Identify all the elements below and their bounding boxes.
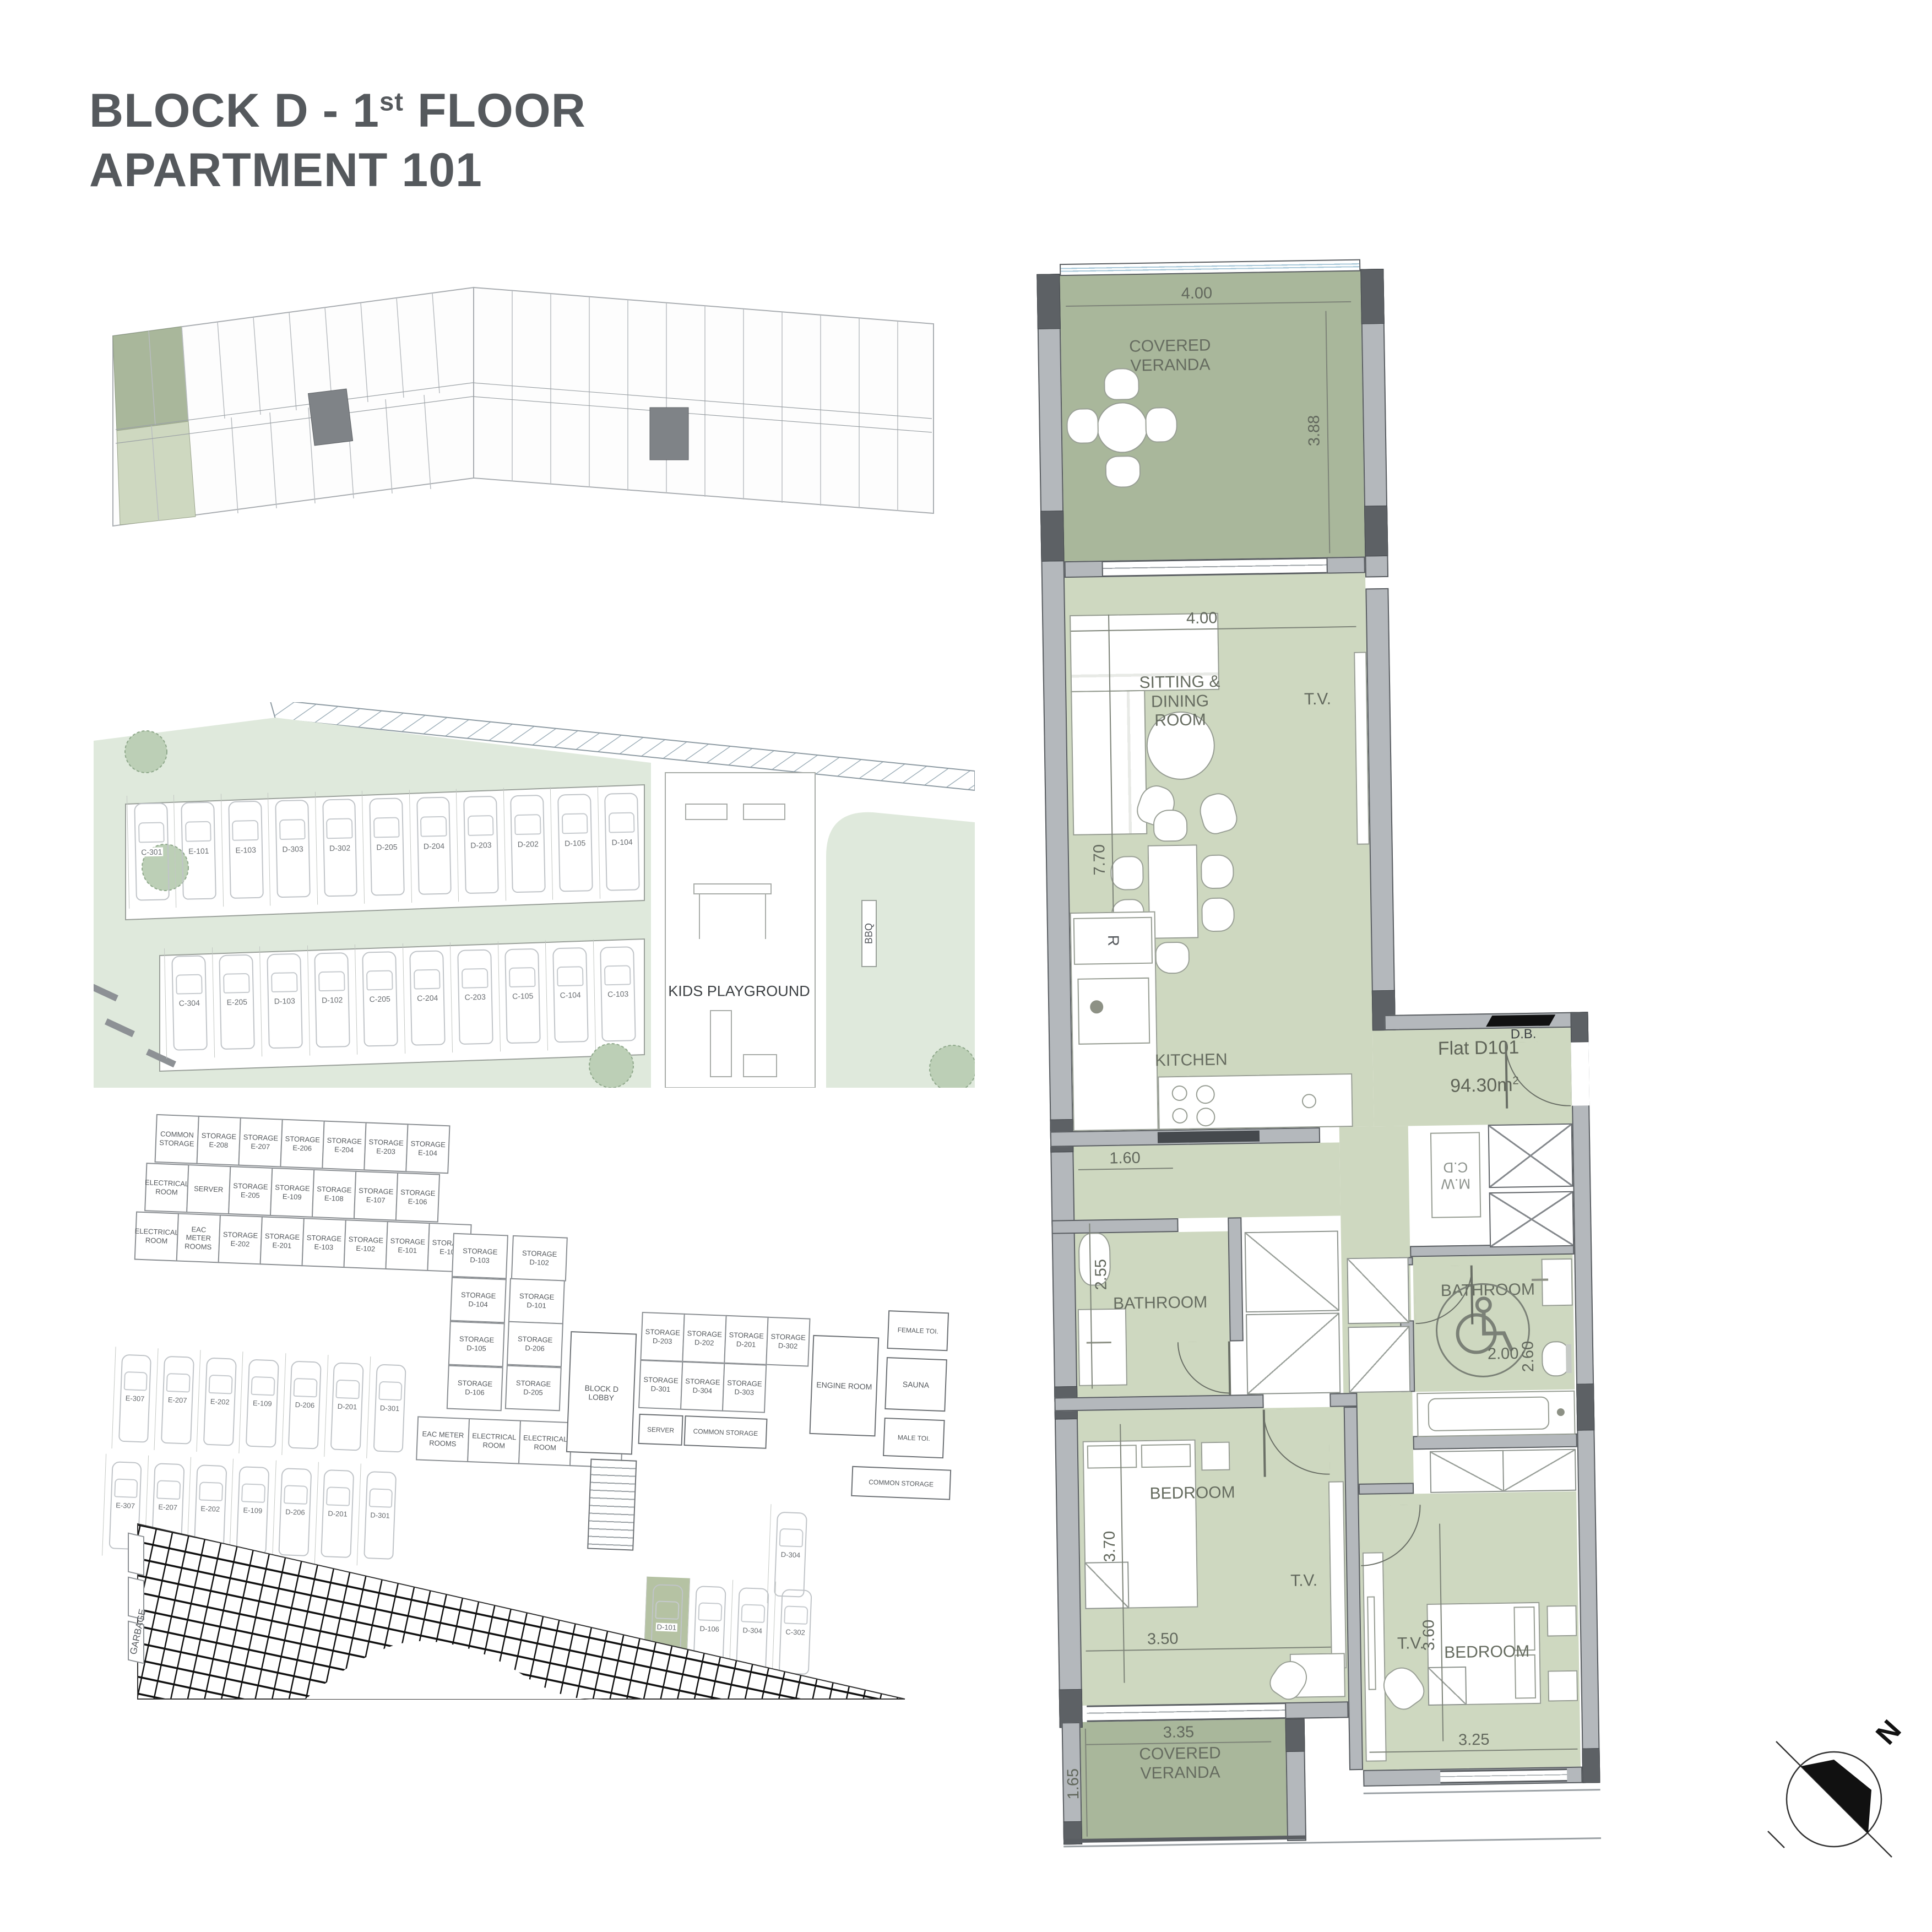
wall [1065, 561, 1103, 578]
chair [1153, 810, 1188, 842]
dimension: 2.60 [1519, 1341, 1538, 1372]
storage-cell: COMMON STORAGE [155, 1114, 199, 1164]
storage-cell: ELECTRICAL ROOM [134, 1212, 179, 1262]
closet [1347, 1257, 1409, 1324]
parking-row-top: C-301E-101E-103D-303D-302D-205D-204D-203… [127, 785, 647, 909]
stall-label: C-205 [368, 994, 392, 1003]
basement-parking-stall: E-307 [112, 1347, 158, 1450]
storage-cell: STORAGE D-303 [722, 1363, 767, 1413]
basement-plan: COMMON STORAGESTORAGE E-208STORAGE E-207… [94, 1093, 1030, 1504]
storage-cell: STORAGE E-101 [385, 1221, 430, 1271]
sauna-room: SAUNA [884, 1357, 947, 1412]
common-storage-room-2: COMMON STORAGE [683, 1415, 767, 1449]
storage-cell: STORAGE E-106 [395, 1173, 440, 1223]
parking-row-bottom: C-304E-205D-103D-102C-205C-204C-203C-105… [164, 938, 643, 1059]
wardrobe [1430, 1450, 1504, 1493]
key-plan [94, 259, 964, 650]
stall-label: E-307 [115, 1501, 136, 1510]
storage-cell: STORAGE E-201 [260, 1216, 305, 1266]
stall-label: E-109 [252, 1399, 273, 1408]
parking-stall: D-302 [315, 791, 365, 905]
parking-stall: E-101 [173, 794, 223, 908]
wall [1051, 1218, 1178, 1234]
parking-stall: D-205 [362, 790, 411, 904]
bathroom1-door-leaf [1228, 1342, 1231, 1395]
window-band [1087, 1702, 1285, 1722]
tv-label: T.V. [1304, 690, 1331, 709]
kitchen-label: KITCHEN [1155, 1050, 1228, 1071]
bathtub-inner [1428, 1396, 1549, 1431]
storage-right-1: STORAGE D-203STORAGE D-202STORAGE D-201S… [641, 1312, 810, 1367]
compass-needle [1801, 1760, 1871, 1833]
female-toilet-room: FEMALE TOI. [887, 1310, 949, 1351]
dimension: 7.70 [1090, 844, 1109, 876]
stall-label: D-105 [563, 838, 587, 848]
bed-fold [1428, 1667, 1467, 1706]
storage-cell: STORAGE D-105 [448, 1321, 505, 1367]
tv-cabinet [1328, 1481, 1347, 1668]
chair [1066, 408, 1099, 444]
chair [1110, 856, 1144, 891]
basement-parking-stall: D-206 [281, 1353, 328, 1457]
storage-cell: STORAGE E-108 [312, 1169, 356, 1219]
storage-cell: STORAGE D-103 [452, 1233, 508, 1279]
fridge-label: R [1104, 935, 1122, 946]
wall [1359, 1483, 1414, 1495]
server-room: SERVER [638, 1414, 683, 1446]
storage-cell: STORAGE D-102 [511, 1235, 568, 1282]
dimension: 3.35 [1163, 1723, 1194, 1742]
dimension: 4.00 [1186, 609, 1218, 628]
key-plan-stair-core-2 [650, 408, 688, 460]
wall-column [1570, 1012, 1588, 1042]
key-plan-highlight-veranda [113, 327, 188, 431]
stall-label: C-301 [140, 847, 163, 856]
stall-label: D-205 [375, 842, 398, 851]
storage-cell: STORAGE D-304 [680, 1361, 725, 1412]
stall-label: C-304 [178, 998, 201, 1008]
stall-label: E-101 [187, 846, 210, 855]
tv-label: T.V. [1290, 1571, 1317, 1591]
wall-column [1360, 269, 1385, 324]
basement-parking-stall: E-207 [154, 1348, 200, 1452]
veranda-top-label: COVERED VERANDA [1129, 336, 1211, 375]
ground-line [1364, 1789, 1600, 1794]
parking-stall: C-105 [497, 941, 547, 1052]
stall-label: D-303 [281, 844, 304, 854]
stall-label: D-206 [284, 1507, 306, 1517]
pillow [1087, 1445, 1137, 1468]
storage-cell: STORAGE E-207 [238, 1117, 283, 1168]
basement-parking-row-1: E-307E-207E-202E-109D-206D-201D-301 [112, 1347, 413, 1460]
stall-label: C-104 [558, 990, 582, 1000]
key-plan-right-wing [474, 287, 934, 513]
dimension: 3.60 [1420, 1619, 1439, 1651]
stall-label: E-109 [242, 1506, 263, 1515]
basement-group: COMMON STORAGESTORAGE E-208STORAGE E-207… [79, 1093, 1030, 1539]
wall [1285, 1701, 1348, 1719]
storage-mid-left: STORAGE D-103STORAGE D-104STORAGE D-105S… [448, 1233, 508, 1412]
parking-stall: D-103 [259, 946, 310, 1057]
storage-cell: STORAGE E-205 [228, 1166, 273, 1216]
storage-cell: STORAGE E-204 [322, 1120, 366, 1170]
apartment-plan: COVERED VERANDA 4.00 3.88 T.V. SITTING &… [1031, 254, 1618, 1860]
db-label: D.B. [1511, 1027, 1537, 1043]
parking-stall: D-204 [409, 789, 459, 903]
parking-stall: C-204 [402, 942, 452, 1054]
dimension: 3.88 [1305, 415, 1324, 446]
stall-label: E-207 [167, 1396, 188, 1404]
bbq-label: BBQ [864, 923, 875, 944]
chair [1145, 407, 1177, 443]
title-line1: BLOCK D - 1st FLOOR [89, 82, 586, 141]
dimension: 2.00 [1488, 1345, 1519, 1364]
chair [1201, 854, 1234, 889]
key-plan-stair-core [308, 389, 353, 446]
interior-window [1158, 1131, 1260, 1143]
basement-parking-stall: D-301 [366, 1356, 413, 1460]
closet [1348, 1326, 1410, 1393]
kitchen-sink-unit [1077, 978, 1150, 1045]
parking-stall: D-104 [597, 785, 647, 899]
storage-cell: ELECTRICAL ROOM [144, 1163, 189, 1213]
sofa [1071, 690, 1147, 835]
wall-column [1582, 1748, 1600, 1783]
storage-cell: STORAGE E-107 [354, 1171, 398, 1221]
stall-label: C-105 [511, 991, 534, 1001]
service-shaft [1489, 1191, 1575, 1247]
parking-stall: D-102 [307, 945, 357, 1056]
title-ordinal: st [379, 87, 404, 116]
chair [1201, 897, 1235, 932]
ramp-hatch [138, 1524, 905, 1699]
wall-column [1576, 1383, 1594, 1430]
storage-right-2: STORAGE D-301STORAGE D-304STORAGE D-303 [639, 1360, 767, 1413]
storage-cell: STORAGE E-109 [270, 1168, 314, 1218]
parking-stall: D-303 [268, 792, 317, 906]
stall-label: D-302 [328, 843, 351, 853]
chair [1104, 368, 1139, 400]
storage-cell: ELECTRICAL ROOM [518, 1420, 572, 1467]
page-title: BLOCK D - 1st FLOOR APARTMENT 101 [89, 82, 586, 200]
nightstand [1546, 1605, 1577, 1637]
parking-stall: C-301 [127, 795, 176, 909]
basement-parking-stall: E-202 [197, 1350, 243, 1453]
stall-label: D-301 [379, 1404, 401, 1413]
parking-stall: E-103 [221, 793, 270, 907]
storage-mid-right: STORAGE D-102 STORAGE D-101 STORAGE D-20… [506, 1235, 568, 1412]
wall-column [1040, 511, 1064, 562]
dimension: 4.00 [1181, 284, 1212, 303]
storage-cell: STORAGE D-205 [505, 1365, 562, 1412]
storage-mid-right-rest: STORAGE D-206STORAGE D-205 [506, 1321, 565, 1412]
chair [1105, 455, 1141, 488]
parking-stall: C-203 [450, 941, 500, 1052]
wall [1329, 1393, 1357, 1407]
stall-label: D-102 [321, 995, 344, 1005]
title-line2: APARTMENT 101 [89, 141, 586, 200]
site-plan: C-301E-101E-103D-303D-302D-205D-204D-203… [94, 702, 975, 1088]
kitchen-counter [1158, 1073, 1353, 1130]
common-storage-room: COMMON STORAGE [851, 1466, 951, 1500]
veranda-bottom-label: COVERED VERANDA [1139, 1744, 1221, 1783]
stall-label: E-103 [234, 845, 257, 854]
stall-label: E-202 [209, 1397, 231, 1406]
dimension: 3.50 [1147, 1630, 1179, 1649]
wall-column [1036, 274, 1061, 329]
stall-label: D-203 [469, 840, 492, 849]
pillow [1141, 1444, 1191, 1468]
window-band [1103, 557, 1326, 577]
sink-tap [1532, 1278, 1548, 1280]
storage-cell: STORAGE E-203 [363, 1122, 408, 1172]
north-label: N [1870, 1714, 1907, 1751]
storage-cell: STORAGE E-104 [405, 1124, 450, 1174]
stall-label: E-205 [225, 997, 248, 1007]
shower [1078, 1309, 1127, 1386]
wall [1326, 557, 1365, 574]
storage-cell-highlight: STORAGE D-101 [508, 1278, 565, 1325]
closet [1245, 1230, 1339, 1312]
stall-label: C-203 [463, 992, 486, 1002]
basement-parking-stall: E-109 [239, 1352, 285, 1455]
stall-label: D-201 [337, 1402, 359, 1412]
wardrobe [1502, 1449, 1576, 1492]
lobby-room: BLOCK D LOBBY [566, 1331, 637, 1455]
dimension: 1.65 [1064, 1768, 1083, 1800]
window-band [1440, 1768, 1567, 1784]
bedroom1-label: BEDROOM [1149, 1483, 1235, 1504]
parking-stall: D-105 [550, 786, 600, 900]
parking-stall: D-203 [456, 788, 506, 902]
wall-column [1285, 1719, 1305, 1752]
stall-label: E-202 [199, 1504, 221, 1513]
entry-door-opening [1571, 1042, 1589, 1105]
db-board [1486, 1014, 1555, 1027]
kids-playground-label: KIDS PLAYGROUND [668, 983, 810, 1000]
parking-stall: D-202 [503, 787, 552, 901]
stall-label: D-204 [422, 841, 446, 850]
wall [1385, 1012, 1588, 1030]
storage-cell: STORAGE D-301 [638, 1360, 683, 1410]
chair [1155, 942, 1190, 974]
male-toilet-room: MALE TOI. [883, 1418, 945, 1458]
compass-tick [1768, 1831, 1784, 1848]
wall [1228, 1217, 1244, 1341]
parking-stall: C-103 [593, 938, 643, 1050]
tv-cabinet [1367, 1596, 1376, 1690]
dimension: 2.55 [1092, 1259, 1111, 1290]
parking-stall: C-304 [164, 947, 214, 1059]
wall-column [1364, 506, 1388, 557]
parking-stall: C-104 [545, 940, 595, 1051]
storage-cell: STORAGE D-104 [450, 1277, 507, 1323]
toilet-tank [1566, 1344, 1572, 1373]
storage-cell: EAC METER ROOMS [416, 1416, 470, 1462]
stall-label: C-204 [416, 994, 439, 1003]
engine-room: ENGINE ROOM [809, 1335, 879, 1436]
storage-cell: EAC METER ROOMS [176, 1213, 221, 1263]
ramp-drawing: GARBAGE [107, 1517, 911, 1771]
bedroom2-label: BEDROOM [1444, 1642, 1530, 1663]
storage-cell: STORAGE D-206 [507, 1321, 563, 1367]
storage-cell: SERVER [186, 1164, 231, 1214]
key-plan-highlight-unit [117, 421, 196, 525]
closet [1246, 1312, 1341, 1394]
nightstand [1548, 1670, 1578, 1702]
storage-cell: STORAGE D-202 [682, 1314, 726, 1364]
laundry-label: M.W C.D [1441, 1159, 1470, 1192]
bathroom-sink [1542, 1258, 1573, 1306]
parking-stall: C-205 [355, 943, 405, 1055]
north-compass: N [1751, 1705, 1922, 1875]
storage-cell: STORAGE D-201 [724, 1315, 768, 1365]
stall-label: D-103 [273, 996, 296, 1006]
stall-label: E-307 [124, 1394, 145, 1403]
stall-label: D-104 [610, 837, 633, 846]
storage-cell: STORAGE E-208 [196, 1116, 241, 1166]
stall-label: D-206 [294, 1401, 316, 1410]
title-floor: FLOOR [404, 84, 586, 137]
storage-cell: STORAGE D-106 [447, 1365, 503, 1411]
parking-stall: E-205 [211, 946, 262, 1057]
storage-cell: STORAGE D-203 [640, 1312, 685, 1362]
storage-cell: ELECTRICAL ROOM [467, 1418, 521, 1464]
stall-label: E-207 [157, 1502, 178, 1511]
storage-cell: STORAGE E-102 [343, 1219, 388, 1269]
storage-cell: STORAGE D-302 [766, 1317, 810, 1367]
storage-cell: STORAGE E-202 [218, 1214, 263, 1265]
basement-parking-stall: D-201 [324, 1355, 370, 1458]
living-label: SITTING & DINING ROOM [1139, 672, 1220, 731]
dimension: 3.25 [1458, 1731, 1490, 1750]
stall-label: D-202 [517, 839, 540, 849]
bathroom1-label: BATHROOM [1113, 1293, 1208, 1314]
dimension: 1.60 [1109, 1149, 1141, 1168]
flat-area: 94.30m2 [1450, 1074, 1519, 1097]
storage-cell: STORAGE E-103 [301, 1218, 346, 1268]
stall-label: C-103 [606, 989, 629, 998]
nightstand [1201, 1442, 1230, 1471]
dimension: 3.70 [1101, 1531, 1120, 1562]
storage-cell: STORAGE E-206 [280, 1119, 324, 1169]
title-block: BLOCK D - 1 [89, 84, 379, 137]
area-value: 94.30m [1450, 1074, 1513, 1097]
service-shaft [1488, 1124, 1573, 1188]
